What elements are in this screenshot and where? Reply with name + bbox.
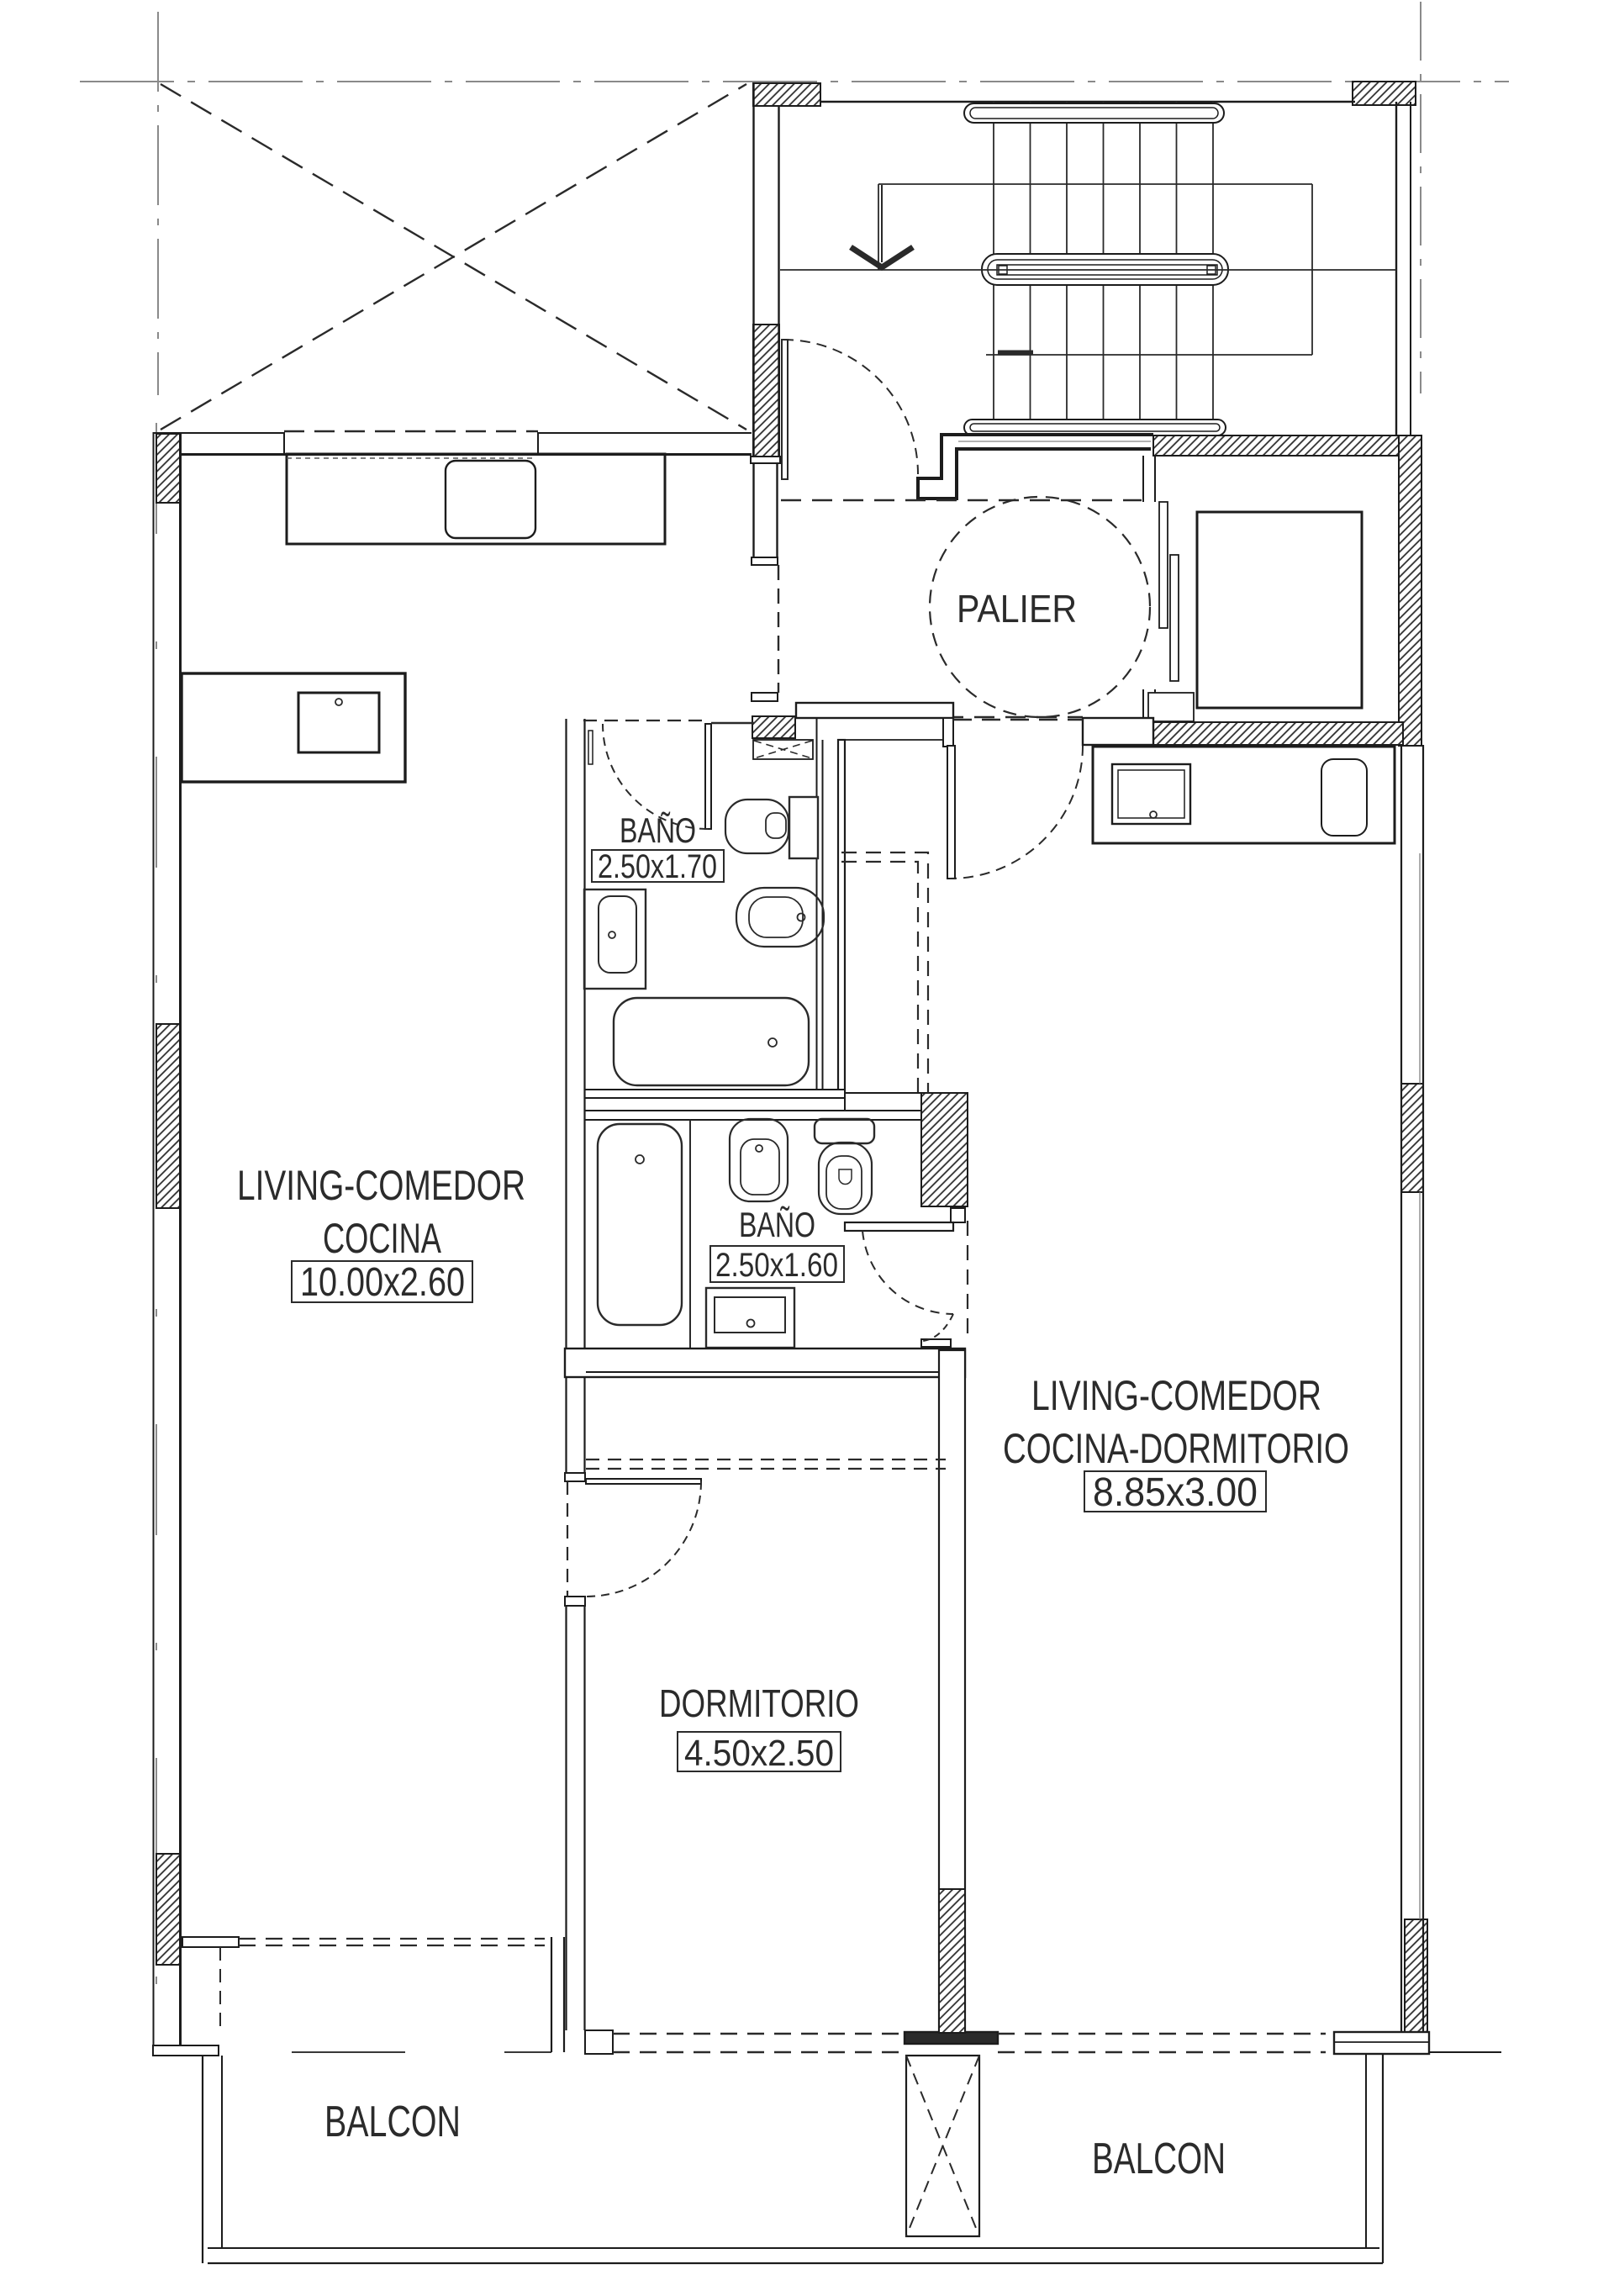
svg-text:BAÑO: BAÑO	[739, 1205, 815, 1244]
svg-text:2.50x1.70: 2.50x1.70	[598, 848, 717, 885]
svg-text:BALCON: BALCON	[324, 2098, 461, 2146]
svg-text:LIVING-COMEDOR: LIVING-COMEDOR	[237, 1162, 525, 1209]
svg-text:DORMITORIO: DORMITORIO	[659, 1681, 859, 1725]
svg-text:10.00x2.60: 10.00x2.60	[300, 1260, 465, 1305]
svg-text:COCINA-DORMITORIO: COCINA-DORMITORIO	[1003, 1425, 1349, 1472]
svg-text:2.50x1.60: 2.50x1.60	[715, 1247, 838, 1284]
svg-text:COCINA: COCINA	[323, 1215, 441, 1262]
svg-text:8.85x3.00: 8.85x3.00	[1093, 1470, 1258, 1515]
svg-text:BALCON: BALCON	[1092, 2135, 1226, 2183]
svg-text:PALIER: PALIER	[957, 587, 1077, 631]
svg-text:BAÑO: BAÑO	[620, 810, 696, 850]
svg-text:LIVING-COMEDOR: LIVING-COMEDOR	[1031, 1372, 1321, 1419]
svg-text:4.50x2.50: 4.50x2.50	[684, 1733, 834, 1774]
